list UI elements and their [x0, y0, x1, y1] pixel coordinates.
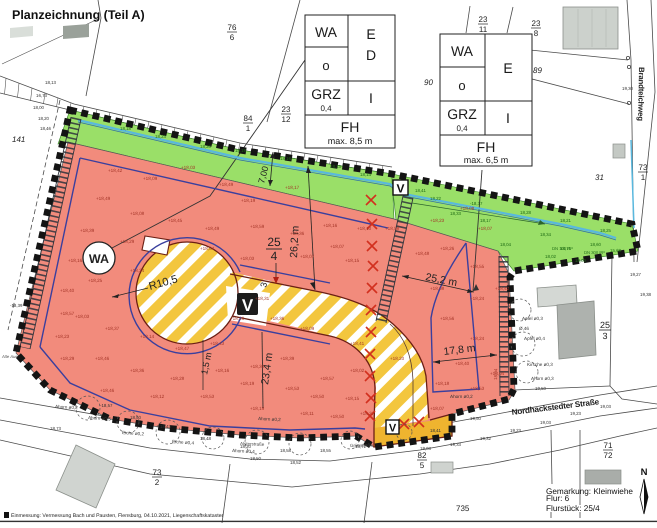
svg-text:+18,59: +18,59 [250, 224, 265, 229]
svg-text:-18,39: -18,39 [10, 303, 23, 308]
svg-text:16,73: 16,73 [36, 93, 48, 98]
svg-text:73: 73 [639, 163, 648, 172]
svg-text:19,50: 19,50 [535, 386, 547, 391]
svg-text:Grünstraße: Grünstraße [350, 443, 373, 448]
svg-text:18,55: 18,55 [320, 448, 332, 453]
svg-text:-18,57: -18,57 [100, 403, 113, 408]
svg-text:18,00: 18,00 [33, 105, 45, 110]
svg-text:18,60: 18,60 [590, 242, 602, 247]
svg-text:+18,50: +18,50 [310, 394, 325, 399]
svg-text:Ahorn ø0,3: Ahorn ø0,3 [531, 376, 554, 381]
svg-text:+18,03: +18,03 [75, 314, 90, 319]
svg-text:1: 1 [641, 173, 646, 182]
svg-text:72: 72 [604, 451, 613, 460]
svg-text:+18,36: +18,36 [130, 368, 145, 373]
svg-text:25: 25 [267, 235, 281, 249]
svg-text:73: 73 [153, 468, 162, 477]
svg-text:18,13: 18,13 [45, 80, 57, 85]
svg-text:18,43: 18,43 [160, 424, 172, 429]
svg-text:19,38: 19,38 [640, 292, 652, 297]
svg-text:+18,07: +18,07 [478, 226, 493, 231]
svg-text:+18,19: +18,19 [241, 198, 256, 203]
svg-text:+18,49: +18,49 [96, 196, 111, 201]
svg-text:V: V [396, 182, 404, 196]
svg-text:18,73: 18,73 [50, 426, 62, 431]
svg-text:18,18: 18,18 [120, 126, 132, 131]
svg-text:3: 3 [602, 331, 607, 341]
svg-text:25: 25 [600, 320, 610, 330]
svg-text:18,25: 18,25 [600, 228, 612, 233]
svg-text:+18,50: +18,50 [330, 414, 345, 419]
svg-text:71: 71 [604, 441, 613, 450]
svg-text:+18,46: +18,46 [95, 356, 110, 361]
svg-text:18,13: 18,13 [330, 164, 342, 169]
svg-text:23: 23 [532, 19, 541, 28]
svg-text:max. 8,5 m: max. 8,5 m [328, 136, 373, 146]
svg-text:WA: WA [89, 252, 109, 266]
svg-text:Flur: 6: Flur: 6 [546, 494, 570, 503]
svg-text:Brandteichweg: Brandteichweg [636, 67, 646, 121]
svg-text:+18,15: +18,15 [345, 396, 360, 401]
svg-text:82: 82 [418, 451, 427, 460]
svg-text:15,68: 15,68 [610, 248, 622, 253]
svg-text:+18,19: +18,19 [250, 406, 265, 411]
svg-text:+18,57: +18,57 [60, 311, 75, 316]
svg-text:+18,16: +18,16 [323, 223, 338, 228]
svg-text:141: 141 [12, 135, 25, 144]
svg-text:E: E [366, 26, 375, 42]
svg-text:Kirsche ø0,3: Kirsche ø0,3 [527, 362, 553, 367]
svg-text:+18,42: +18,42 [108, 168, 123, 173]
svg-text:Ø,46: Ø,46 [519, 326, 529, 331]
svg-text:6: 6 [230, 33, 235, 42]
svg-text:+18,18: +18,18 [435, 381, 450, 386]
svg-text:+18,26: +18,26 [230, 316, 245, 321]
svg-text:o: o [458, 78, 465, 93]
svg-text:76: 76 [228, 23, 237, 32]
svg-text:18,19: 18,19 [235, 148, 247, 153]
svg-text:+18,08: +18,08 [130, 211, 145, 216]
svg-text:+18,25: +18,25 [88, 278, 103, 283]
svg-text:19,30: 19,30 [622, 86, 634, 91]
svg-text:19,23: 19,23 [510, 428, 522, 433]
svg-text:+18,40: +18,40 [60, 288, 75, 293]
svg-text:+18,23: +18,23 [430, 218, 445, 223]
svg-text:+18,16: +18,16 [215, 368, 230, 373]
svg-text:+18,34: +18,34 [130, 268, 145, 273]
svg-text:18,50: 18,50 [130, 415, 142, 420]
svg-text:+18,24: +18,24 [470, 336, 485, 341]
svg-text:31: 31 [595, 173, 604, 182]
svg-text:I: I [506, 110, 510, 126]
svg-text:+18,53: +18,53 [200, 394, 215, 399]
svg-text:Flurstück: 25/4: Flurstück: 25/4 [546, 504, 600, 513]
svg-text:I: I [369, 90, 373, 106]
svg-text:+18,45: +18,45 [168, 218, 183, 223]
svg-text:WA: WA [315, 24, 338, 40]
svg-text:18,20: 18,20 [38, 116, 50, 121]
svg-text:+18,04: +18,04 [200, 246, 215, 251]
svg-text:18,21: 18,21 [560, 218, 572, 223]
svg-text:GRZ: GRZ [311, 86, 341, 102]
svg-text:+18,28: +18,28 [170, 376, 185, 381]
svg-text:GRZ: GRZ [447, 106, 477, 122]
svg-text:1: 1 [246, 124, 251, 133]
svg-text:Ahorn ø0,2: Ahorn ø0,2 [450, 394, 473, 399]
svg-text:DN 300 PP: DN 300 PP [584, 250, 605, 255]
svg-text:+18,29: +18,29 [60, 356, 75, 361]
svg-text:+18,49: +18,49 [205, 226, 220, 231]
svg-text:+18,14: +18,14 [140, 334, 155, 339]
svg-text:0,4: 0,4 [320, 104, 332, 113]
svg-text:N: N [641, 467, 648, 478]
svg-text:+18,41: +18,41 [350, 341, 365, 346]
svg-text:89: 89 [533, 66, 542, 75]
svg-text:+18,40: +18,40 [455, 361, 470, 366]
svg-text:+18,15: +18,15 [345, 258, 360, 263]
svg-text:+18,46: +18,46 [100, 388, 115, 393]
svg-text:+18,39: +18,39 [280, 356, 295, 361]
svg-text:+18,56: +18,56 [440, 316, 455, 321]
svg-text:18,58: 18,58 [280, 448, 292, 453]
svg-text:+18,58: +18,58 [385, 226, 400, 231]
svg-text:+18,39: +18,39 [80, 228, 95, 233]
svg-text:Apfel ø0,4: Apfel ø0,4 [524, 336, 545, 341]
svg-text:-18,37: -18,37 [470, 201, 483, 206]
svg-text:+18,09: +18,09 [143, 176, 158, 181]
svg-text:E: E [503, 60, 512, 76]
svg-text:+18,19: +18,19 [240, 381, 255, 386]
svg-text:max. 6,5 m: max. 6,5 m [464, 155, 509, 165]
svg-text:+18,36: +18,36 [290, 231, 305, 236]
svg-text:18,22: 18,22 [430, 196, 442, 201]
svg-text:19,03: 19,03 [600, 404, 612, 409]
svg-text:18,23: 18,23 [155, 134, 167, 139]
svg-text:+18,08: +18,08 [460, 206, 475, 211]
svg-text:+18,24: +18,24 [470, 296, 485, 301]
svg-text:+18,11: +18,11 [300, 411, 314, 416]
svg-text:19,03: 19,03 [420, 446, 432, 451]
svg-text:19,27: 19,27 [630, 272, 642, 277]
svg-text:+18,26: +18,26 [440, 246, 455, 251]
svg-text:+18,20: +18,20 [390, 356, 405, 361]
svg-text:19,03: 19,03 [540, 420, 552, 425]
svg-text:19,32: 19,32 [480, 436, 492, 441]
svg-text:+18,43: +18,43 [210, 341, 225, 346]
svg-text:Apfel ø0,3: Apfel ø0,3 [522, 316, 543, 321]
svg-text:84: 84 [244, 114, 253, 123]
svg-text:Planzeichnung (Teil A): Planzeichnung (Teil A) [12, 8, 145, 22]
svg-text:+18,29: +18,29 [120, 239, 135, 244]
svg-text:FH: FH [341, 119, 360, 135]
svg-text:18,48: 18,48 [200, 436, 212, 441]
svg-text:23: 23 [479, 15, 488, 24]
svg-text:+18,07: +18,07 [300, 254, 315, 259]
svg-text:90: 90 [424, 78, 433, 87]
svg-text:+18,12: +18,12 [150, 394, 165, 399]
svg-text:+18,55: +18,55 [470, 264, 485, 269]
svg-text:18,33: 18,33 [450, 211, 462, 216]
svg-text:18,00: 18,00 [575, 258, 587, 263]
svg-text:Alsterstraße: Alsterstraße [240, 441, 265, 447]
svg-text:WA: WA [451, 43, 474, 59]
svg-text:+18,17: +18,17 [285, 185, 300, 190]
svg-text:18,17: 18,17 [480, 218, 492, 223]
svg-text:18,04: 18,04 [500, 242, 512, 247]
svg-text:+18,31: +18,31 [255, 296, 270, 301]
svg-text:+18,48: +18,48 [415, 251, 430, 256]
svg-text:18,28: 18,28 [520, 210, 532, 215]
svg-text:+18,37: +18,37 [360, 411, 375, 416]
svg-text:18,16: 18,16 [280, 156, 292, 161]
svg-text:+18,08: +18,08 [430, 286, 445, 291]
svg-text:DN 100 PP: DN 100 PP [552, 246, 573, 251]
svg-text:735: 735 [456, 504, 470, 513]
svg-text:18,41: 18,41 [430, 428, 442, 433]
svg-text:o: o [322, 58, 329, 73]
svg-text:+18,37: +18,37 [105, 326, 120, 331]
svg-text:+18,09: +18,09 [300, 326, 315, 331]
svg-text:2: 2 [155, 478, 160, 487]
svg-text:+18,03: +18,03 [181, 165, 196, 170]
svg-text:+18,03: +18,03 [240, 256, 255, 261]
svg-text:8: 8 [534, 29, 539, 38]
svg-text:D: D [366, 47, 376, 63]
svg-text:V: V [389, 423, 397, 435]
svg-text:18,41: 18,41 [415, 188, 427, 193]
svg-text:0,4: 0,4 [456, 124, 468, 133]
svg-text:+18,53: +18,53 [470, 386, 485, 391]
svg-text:18,46: 18,46 [40, 126, 52, 131]
svg-text:5: 5 [420, 461, 425, 470]
svg-text:FH: FH [477, 139, 496, 155]
svg-text:18,02: 18,02 [545, 254, 557, 259]
svg-text:18,52: 18,52 [290, 460, 302, 465]
svg-text:19,23: 19,23 [570, 411, 582, 416]
svg-text:+18,49: +18,49 [219, 182, 234, 187]
svg-text:23: 23 [282, 105, 291, 114]
svg-text:+18,10: +18,10 [357, 226, 372, 231]
svg-text:18,34: 18,34 [540, 232, 552, 237]
svg-text:12: 12 [282, 115, 291, 124]
svg-text:11: 11 [479, 25, 488, 34]
svg-text:+18,07: +18,07 [430, 406, 445, 411]
svg-text:Einmessung: Vermessung Bach un: Einmessung: Vermessung Bach und Pausten,… [11, 513, 224, 519]
svg-text:V: V [242, 296, 254, 315]
svg-text:Alte Aue: Alte Aue [1, 354, 18, 359]
svg-text:+18,07: +18,07 [330, 244, 345, 249]
svg-text:18,14: 18,14 [360, 172, 372, 177]
svg-text:+18,47: +18,47 [175, 346, 190, 351]
svg-text:+18,36: +18,36 [270, 316, 285, 321]
svg-text:19,50: 19,50 [470, 416, 482, 421]
svg-text:+18,30: +18,30 [250, 364, 265, 369]
svg-text:+18,02: +18,02 [350, 368, 365, 373]
svg-text:4: 4 [271, 249, 278, 263]
svg-text:+18,53: +18,53 [285, 386, 300, 391]
svg-text:+18,23: +18,23 [55, 334, 70, 339]
svg-text:18,20: 18,20 [200, 144, 212, 149]
svg-text:+18,57: +18,57 [320, 376, 335, 381]
svg-text:+18,42: +18,42 [495, 286, 510, 291]
svg-text:19,33: 19,33 [450, 442, 462, 447]
svg-text:+18,16: +18,16 [68, 258, 83, 263]
svg-text:+18,04: +18,04 [490, 371, 505, 376]
svg-text:18,50: 18,50 [250, 456, 262, 461]
